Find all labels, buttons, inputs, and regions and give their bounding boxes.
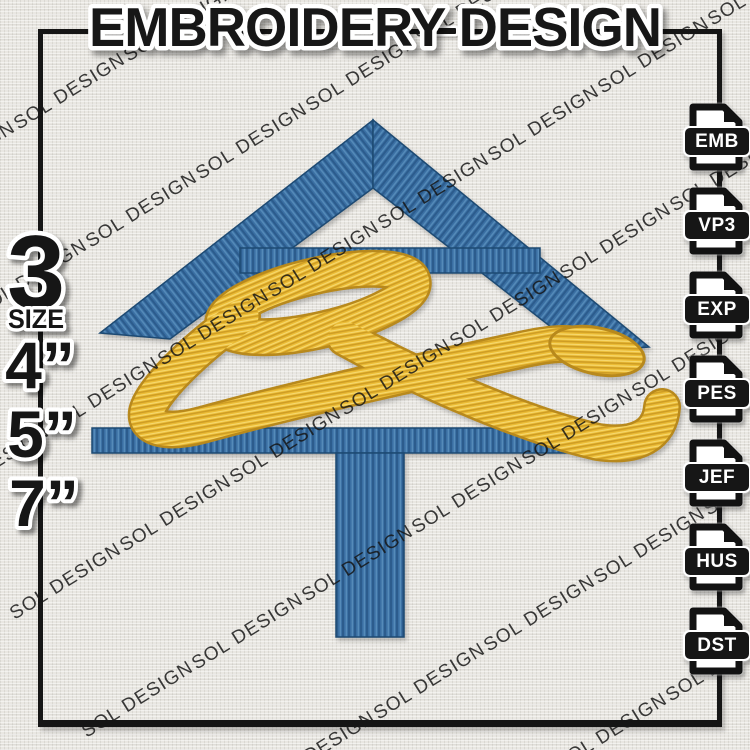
size-option-4in: 4” — [5, 328, 75, 402]
format-label: DST — [685, 632, 749, 659]
format-badge-hus: HUS — [685, 523, 749, 591]
size-option-7in: 7” — [9, 466, 79, 540]
format-badge-pes: PES — [685, 355, 749, 423]
embroidery-design — [0, 0, 750, 750]
format-label: JEF — [685, 464, 749, 491]
roof-right-slope — [373, 120, 649, 352]
page-title: EMBROIDERY DESIGN — [89, 0, 661, 58]
format-badge-exp: EXP — [685, 271, 749, 339]
format-label: VP3 — [685, 212, 749, 239]
format-badge-emb: EMB — [685, 103, 749, 171]
format-label: HUS — [685, 548, 749, 575]
format-badge-vp3: VP3 — [685, 187, 749, 255]
format-label: EMB — [685, 128, 749, 155]
title-banner: EMBROIDERY DESIGN — [0, 0, 750, 72]
format-badge-dst: DST — [685, 607, 749, 675]
embroidery-listing-image: SOL DESIGNSOL DESIGNSOL DESIGNSOL DESIGN… — [0, 0, 750, 750]
format-label: EXP — [685, 296, 749, 323]
format-badge-jef: JEF — [685, 439, 749, 507]
t-post — [336, 453, 404, 637]
format-label: PES — [685, 380, 749, 407]
size-panel: 3 SIZE 4” 5” 7” — [0, 218, 110, 548]
size-option-5in: 5” — [7, 397, 77, 471]
